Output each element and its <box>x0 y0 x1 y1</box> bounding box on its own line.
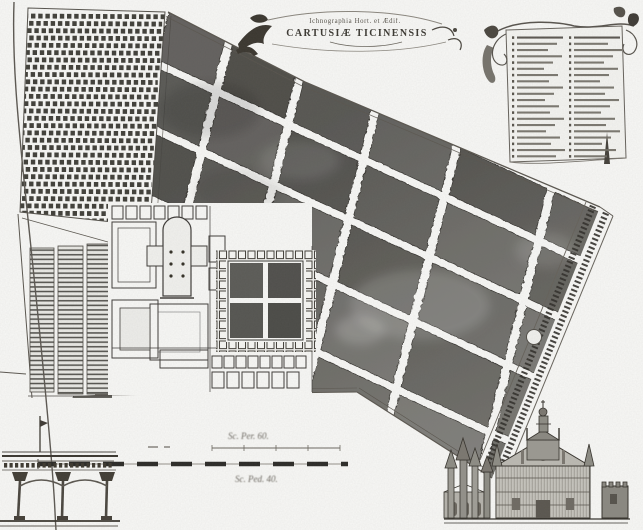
engraved-map-certosa: Ichnographia Hort. et Ædif. CARTUSIÆ TIC… <box>0 0 643 530</box>
scanned-engraving-page: Ichnographia Hort. et Ædif. CARTUSIÆ TIC… <box>0 0 643 530</box>
paper-grain-overlay <box>0 0 643 530</box>
